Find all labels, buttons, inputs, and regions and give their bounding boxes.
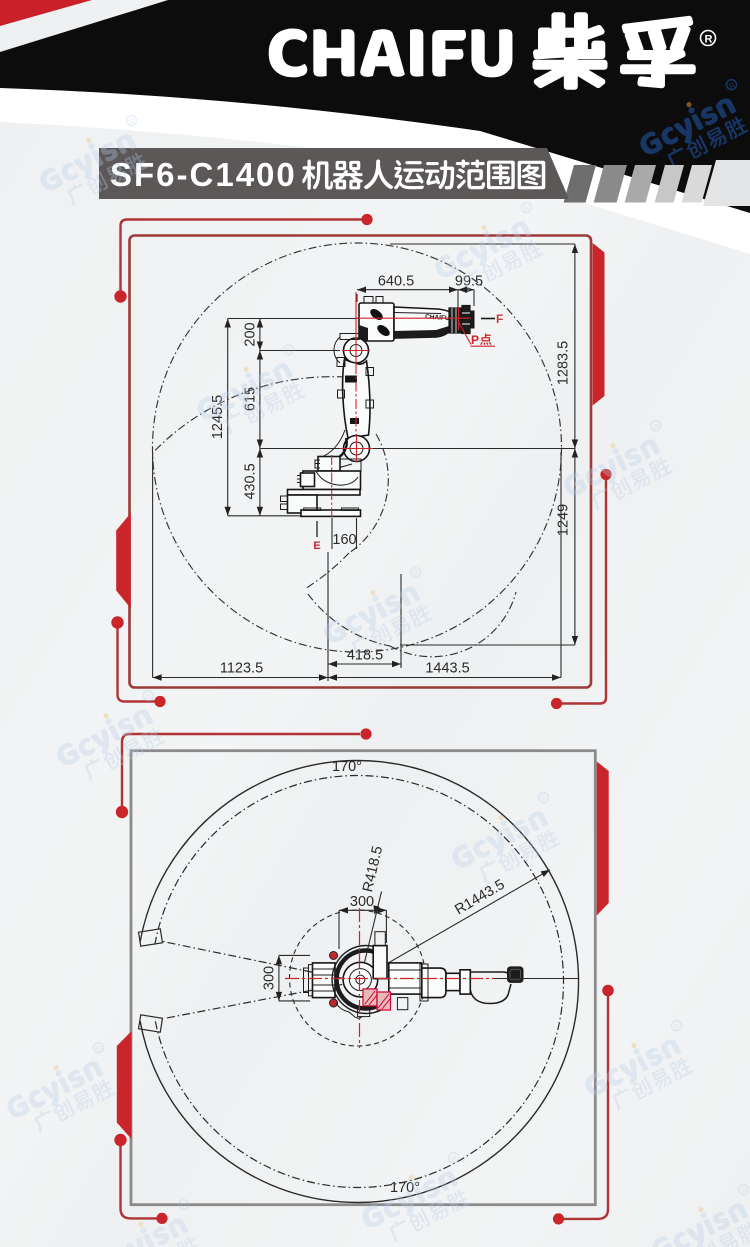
svg-text:430.5: 430.5 [243,463,259,499]
svg-text:1123.5: 1123.5 [220,661,263,677]
svg-text:1249: 1249 [556,504,572,536]
svg-text:200: 200 [243,322,259,346]
svg-text:300: 300 [350,894,374,910]
svg-text:F: F [496,312,503,326]
svg-text:640.5: 640.5 [378,274,414,290]
svg-text:P: P [471,333,479,347]
svg-text:1283.5: 1283.5 [556,341,572,385]
svg-text:160: 160 [332,532,356,548]
svg-text:170°: 170° [332,759,362,775]
svg-text:300: 300 [262,966,278,990]
svg-text:E: E [313,540,320,552]
svg-text:SF6-C1400: SF6-C1400 [110,156,297,193]
svg-text:418.5: 418.5 [347,648,383,664]
svg-text:R: R [705,34,713,46]
svg-text:1443.5: 1443.5 [425,661,469,677]
